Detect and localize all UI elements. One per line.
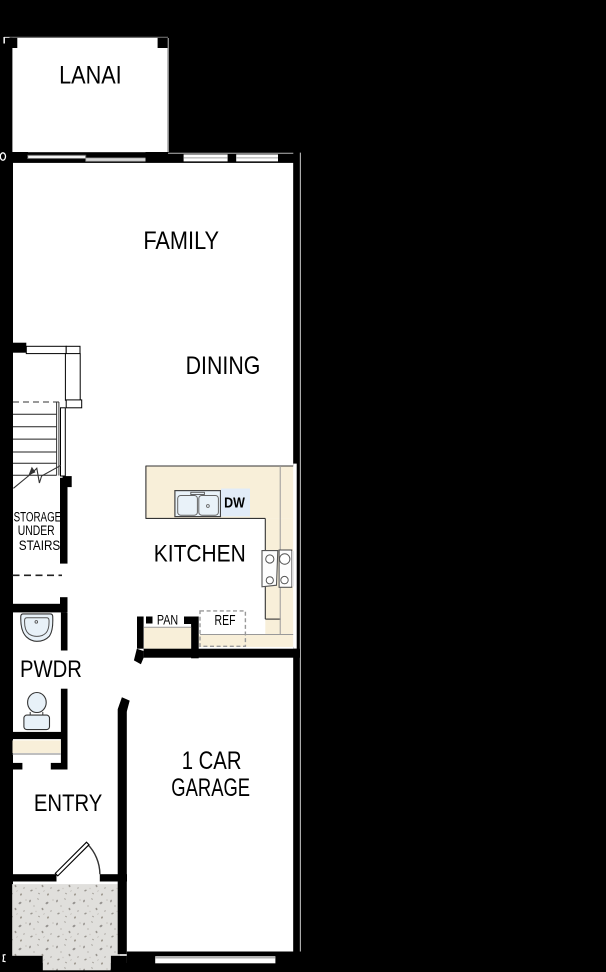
- svg-text:STAIRS: STAIRS: [19, 538, 61, 553]
- svg-text:1 CAR: 1 CAR: [182, 747, 242, 775]
- svg-text:KITCHEN: KITCHEN: [154, 541, 246, 568]
- svg-text:FAMILY: FAMILY: [143, 227, 219, 255]
- svg-text:ENTRY: ENTRY: [34, 791, 103, 817]
- svg-text:LANAI: LANAI: [59, 62, 122, 90]
- svg-text:DW: DW: [224, 495, 245, 511]
- svg-text:PWDR: PWDR: [20, 656, 82, 683]
- svg-text:GARAGE: GARAGE: [171, 774, 250, 802]
- svg-text:PAN: PAN: [157, 612, 178, 627]
- svg-text:UNDER: UNDER: [18, 523, 55, 538]
- svg-text:DINING: DINING: [186, 352, 261, 380]
- svg-text:REF: REF: [215, 613, 236, 629]
